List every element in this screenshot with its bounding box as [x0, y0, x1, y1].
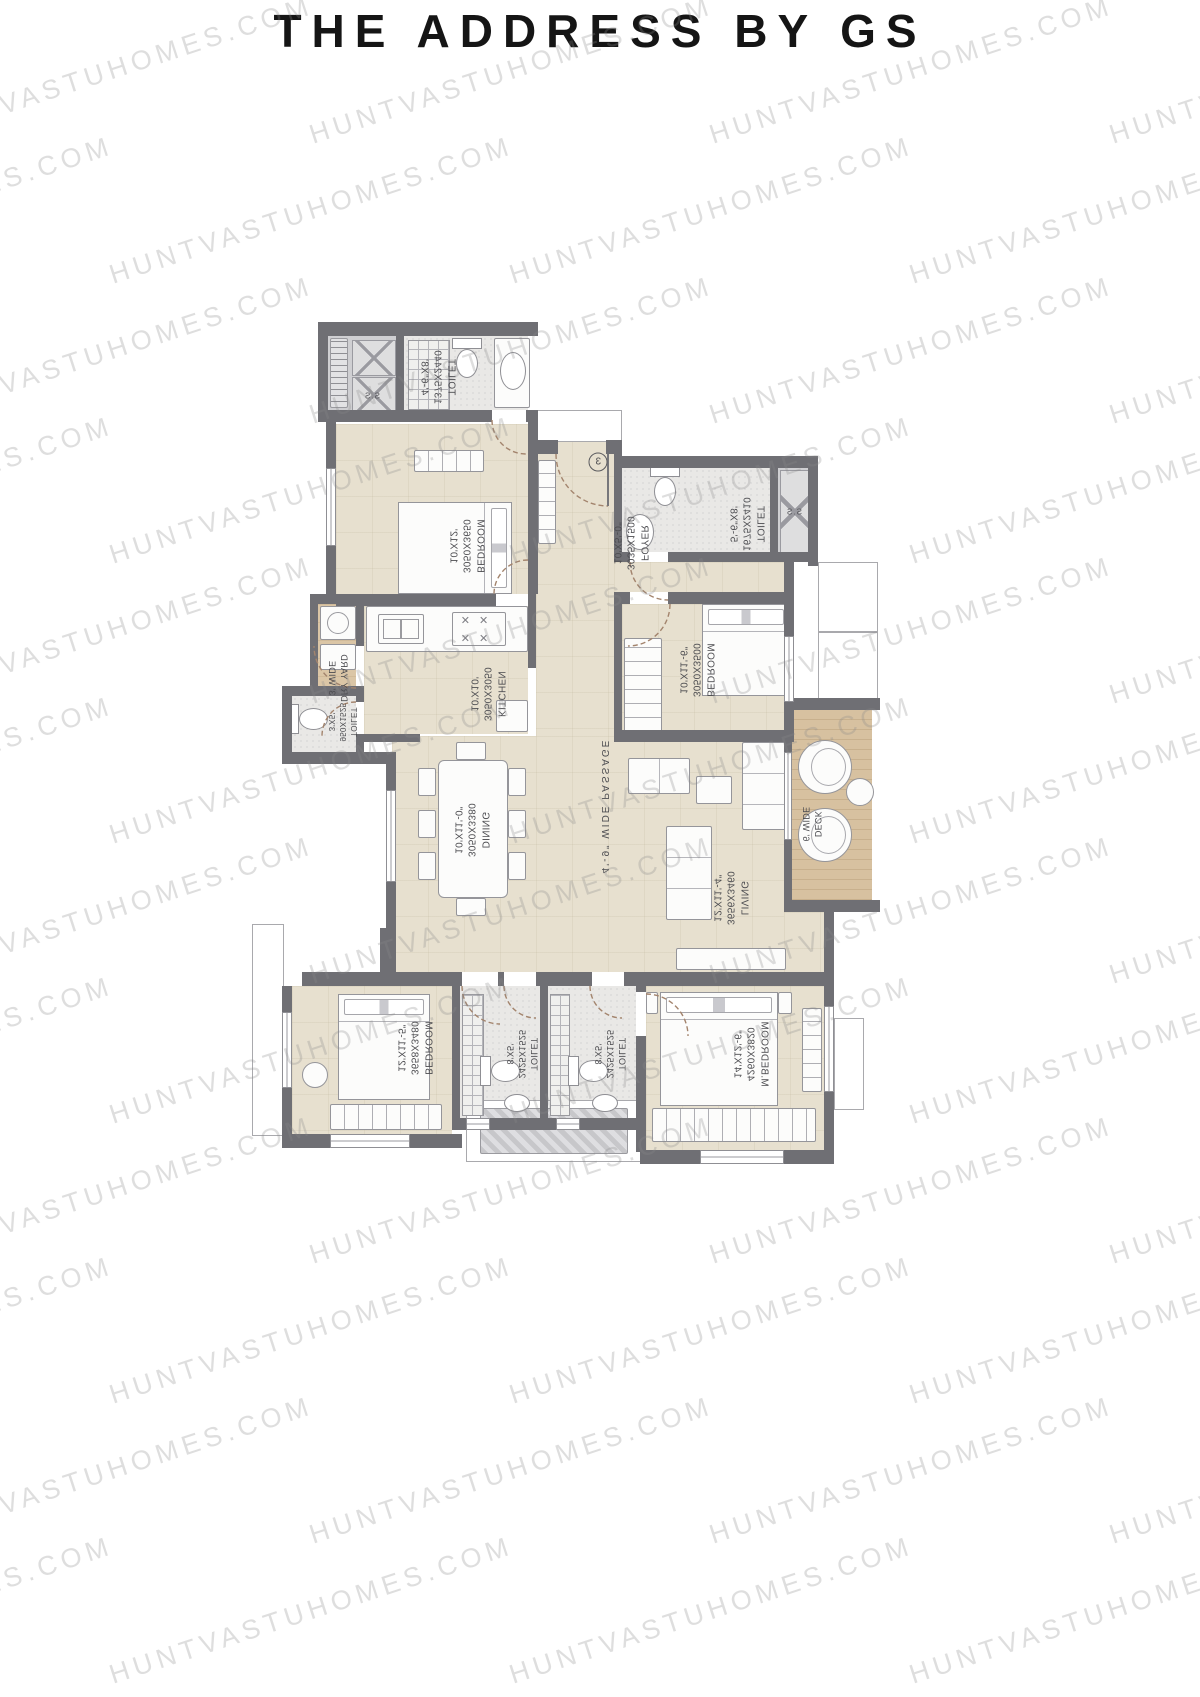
floorplan-page: THE ADDRESS BY GS	[0, 0, 1200, 1697]
room-dim-mm: 1675X2410	[739, 497, 753, 551]
living-label: LIVING 3656X3460 12'X11'-4"	[710, 871, 751, 925]
room-size: 3' WIDE	[326, 654, 338, 702]
toilet3-label: TOILET 950X1525 3'X5'	[326, 703, 358, 742]
room-dim-mm: 3035X1500	[623, 516, 637, 570]
room-dim-ft: 3'X5'	[326, 703, 337, 742]
room-dim-mm: 2425X1525	[604, 1030, 616, 1079]
room-dim-ft: 10'X5'-0"	[610, 516, 624, 570]
room-size: 6' WIDE	[800, 807, 812, 842]
toilet2-label: TOILET 1675X2410 5'-6"X8'	[726, 497, 767, 551]
room-dim-ft: 10'X12'	[446, 519, 460, 573]
room-dim-mm: 3050X3380	[464, 803, 478, 857]
passage-label: 4'-9" WIDE PASSAGE	[597, 739, 611, 874]
room-name: TOILET	[616, 1030, 628, 1079]
shaft-name: S.S	[364, 392, 380, 401]
room-name: TOILET	[753, 497, 767, 551]
bedroom3-label: BEDROOM 3658X3480 12'X11'-5"	[394, 1021, 435, 1075]
entrance-door-number: 3	[589, 453, 608, 472]
floor-plan: TOILET 1375X2440 4'-6"X8' S.S BEDROOM 30…	[0, 0, 1200, 1697]
room-name: TOILET	[528, 1030, 540, 1079]
page-title: THE ADDRESS BY GS	[0, 4, 1200, 58]
room-dim-mm: 3656X3460	[723, 871, 737, 925]
toilet4-label: TOILET 2425X1525 8'X5'	[504, 1030, 540, 1079]
toilet5-label: TOILET 2425X1525 8'X5'	[592, 1030, 628, 1079]
bedroom2-label: BEDROOM 3050X3500 10'X11'-6"	[676, 643, 717, 697]
room-name: LIVING	[737, 871, 751, 925]
room-dim-ft: 4'-6"X8'	[417, 350, 431, 404]
door-number-text: 3	[595, 457, 601, 468]
shaft-name: S.S	[786, 508, 802, 517]
room-name: DRY YARD	[338, 654, 350, 702]
room-name: BEDROOM	[703, 643, 717, 697]
room-dim-ft: 12'X11'-4"	[710, 871, 724, 925]
room-name: BEDROOM	[421, 1021, 435, 1075]
room-name: M.BEDROOM	[757, 1021, 771, 1086]
room-name: TOILET	[444, 350, 458, 404]
bedroom1-label: BEDROOM 3050X3650 10'X12'	[446, 519, 487, 573]
kitchen-label: KITCHEN 3050X3050 10'X10'	[467, 667, 508, 721]
shaft2-label: S.S	[786, 508, 802, 517]
room-dim-ft: 10'X11'-6"	[676, 643, 690, 697]
room-dim-ft: 5'-6"X8'	[726, 497, 740, 551]
room-dim-ft: 8'X5'	[592, 1030, 604, 1079]
room-name: BEDROOM	[473, 519, 487, 573]
room-dim-mm: 1375X2440	[430, 350, 444, 404]
master-bedroom-label: M.BEDROOM 4260X3820 14'X12'-6"	[730, 1021, 771, 1086]
passage-text: 4'-9" WIDE PASSAGE	[597, 739, 611, 874]
room-name: FOYER	[637, 516, 651, 570]
room-name: DECK	[812, 807, 824, 842]
room-dim-mm: 950X1525	[337, 703, 348, 742]
room-dim-ft: 14'X12'-6"	[730, 1021, 744, 1086]
room-dim-ft: 12'X11'-5"	[394, 1021, 408, 1075]
room-dim-mm: 3050X3500	[689, 643, 703, 697]
foyer-label: FOYER 3035X1500 10'X5'-0"	[610, 516, 651, 570]
room-dim-mm: 2425X1525	[516, 1030, 528, 1079]
shaft1-label: S.S	[364, 392, 380, 401]
deck-label: DECK 6' WIDE	[800, 807, 824, 842]
room-name: DINING	[478, 803, 492, 857]
toilet1-label: TOILET 1375X2440 4'-6"X8'	[417, 350, 458, 404]
room-name: KITCHEN	[494, 667, 508, 721]
room-dim-mm: 3658X3480	[407, 1021, 421, 1075]
room-dim-mm: 4260X3820	[743, 1021, 757, 1086]
room-dim-mm: 3050X3650	[459, 519, 473, 573]
room-name: TOILET	[347, 703, 358, 742]
dry-yard-label: DRY YARD 3' WIDE	[326, 654, 350, 702]
room-dim-ft: 8'X5'	[504, 1030, 516, 1079]
dining-label: DINING 3050X3380 10'X11'-0"	[451, 803, 492, 857]
room-dim-ft: 10'X10'	[467, 667, 481, 721]
room-dim-mm: 3050X3050	[480, 667, 494, 721]
room-dim-ft: 10'X11'-0"	[451, 803, 465, 857]
